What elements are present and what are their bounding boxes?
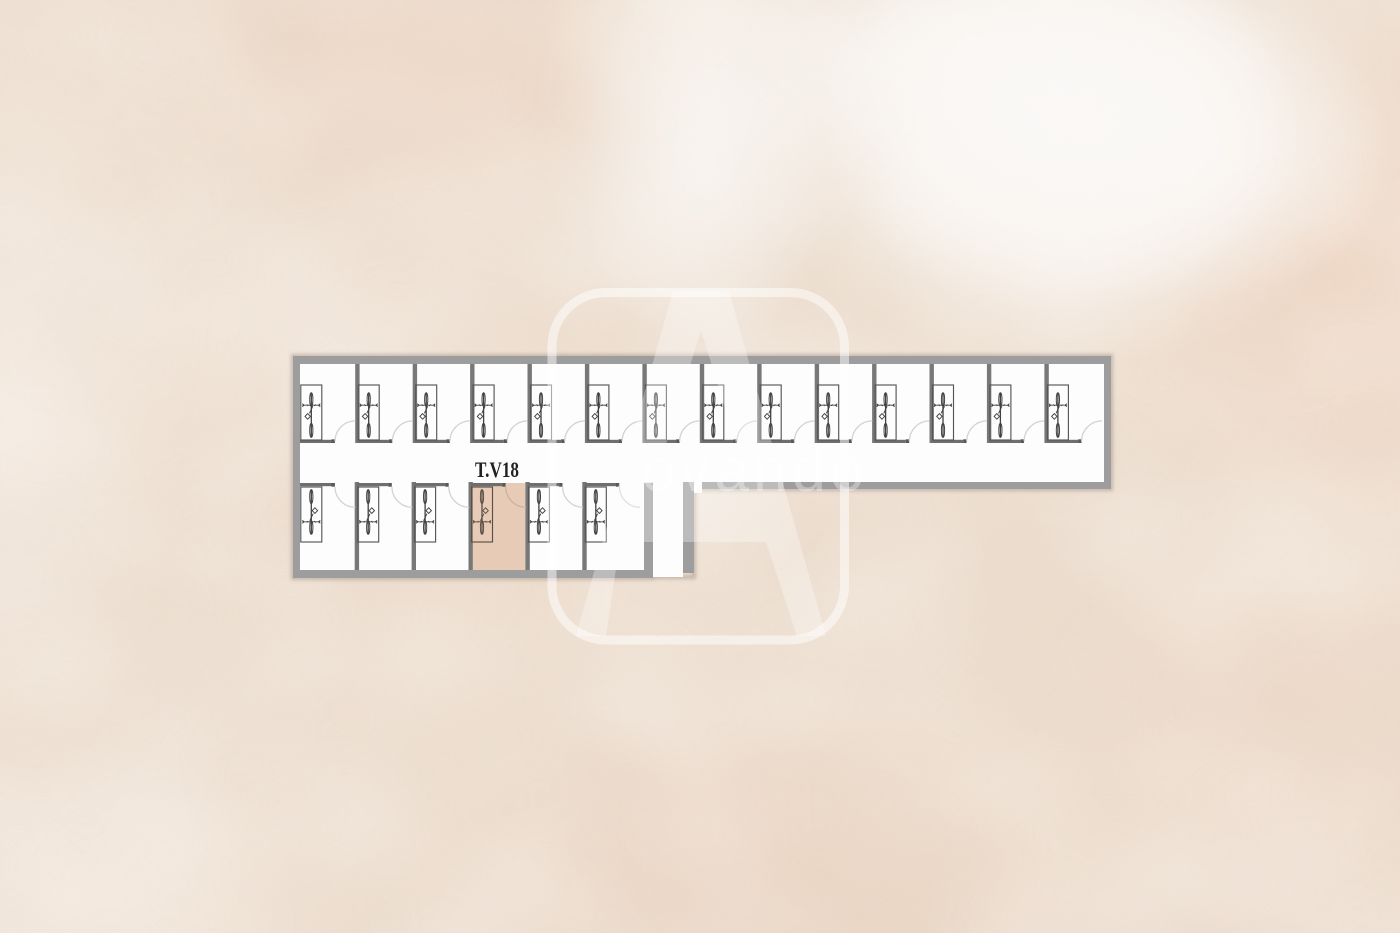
svg-text:T.V18: T.V18: [475, 457, 519, 482]
svg-text:ovando: ovando: [641, 436, 868, 505]
